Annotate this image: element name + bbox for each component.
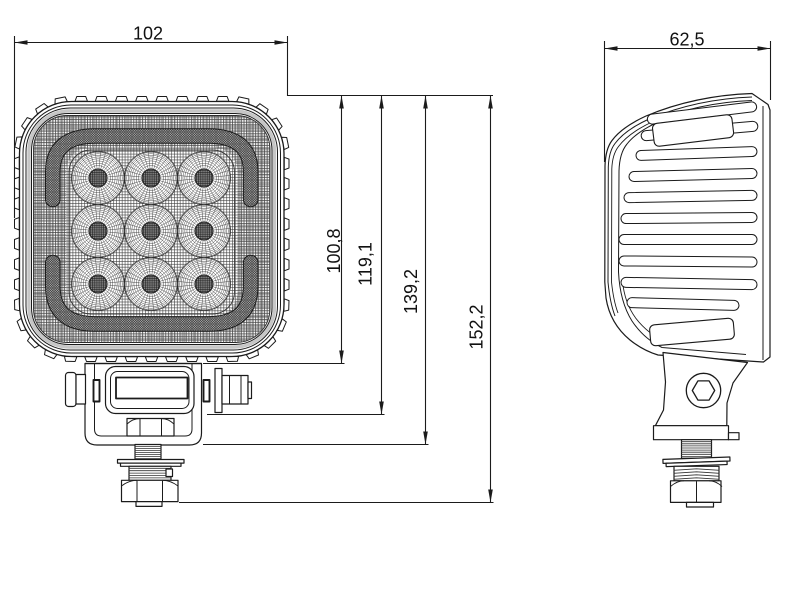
svg-text:62,5: 62,5: [669, 29, 704, 49]
svg-text:100,8: 100,8: [324, 228, 344, 273]
svg-text:102: 102: [133, 23, 163, 43]
svg-text:152,2: 152,2: [467, 304, 487, 349]
svg-text:139,2: 139,2: [401, 269, 421, 314]
svg-text:119,1: 119,1: [356, 242, 376, 286]
